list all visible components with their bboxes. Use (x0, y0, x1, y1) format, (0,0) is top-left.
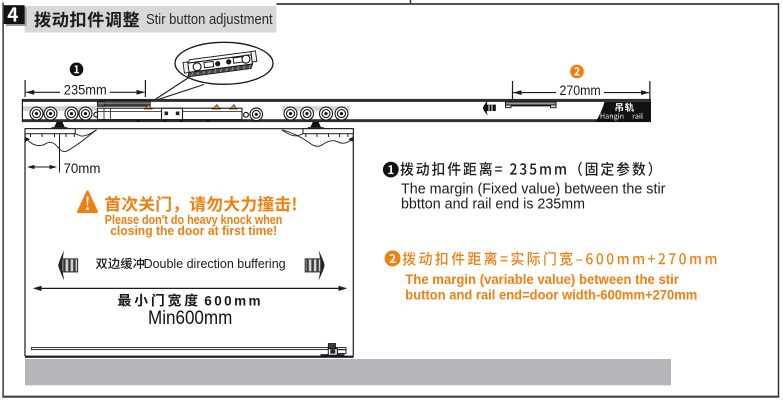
svg-text:70mm: 70mm (64, 161, 101, 176)
svg-text:Stir button adjustment: Stir button adjustment (146, 12, 273, 28)
svg-text:The margin (variable value) be: The margin (variable value) between the … (405, 272, 679, 287)
svg-text:270mm: 270mm (560, 83, 601, 98)
svg-text:Double direction buffering: Double direction buffering (144, 256, 286, 271)
svg-text:235mm: 235mm (64, 83, 107, 98)
svg-text:closing the door at first time: closing the door at first time! (110, 223, 277, 238)
svg-text:bbtton and rail end is 235mm: bbtton and rail end is 235mm (401, 196, 585, 213)
svg-text:Min600mm: Min600mm (148, 307, 232, 329)
svg-text:button and rail end=door width: button and rail end=door width-600mm+270… (405, 287, 697, 302)
